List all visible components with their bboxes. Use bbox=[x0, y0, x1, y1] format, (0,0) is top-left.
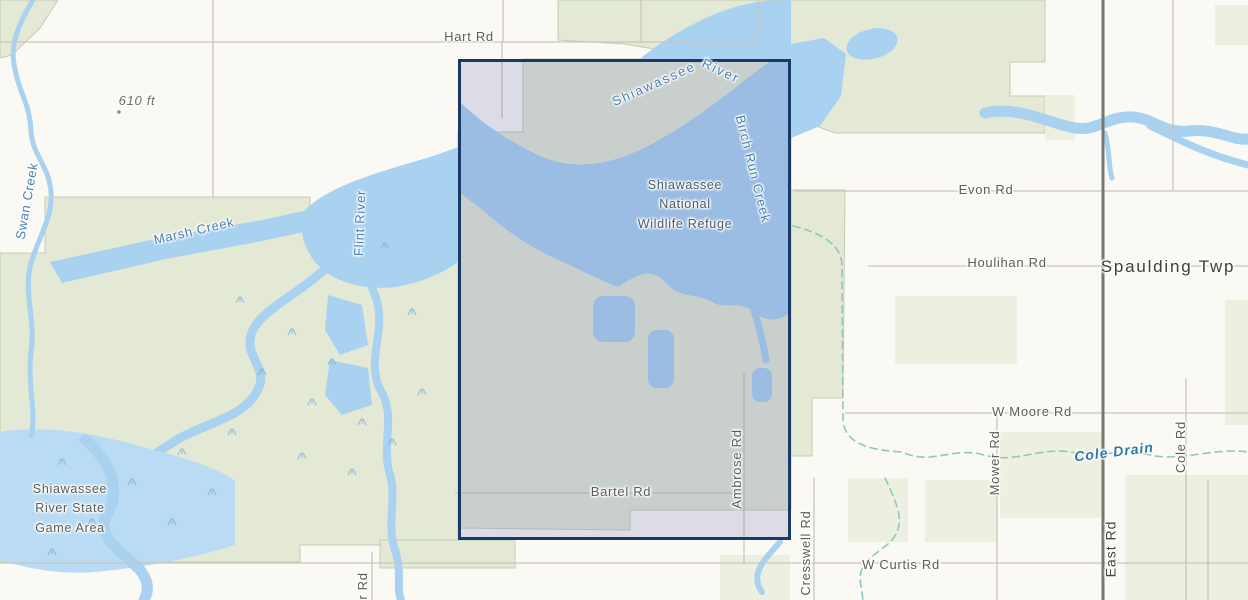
elevation-point-marker bbox=[117, 110, 120, 113]
map-viewport[interactable]: Hart Rd 610 ft Swan Creek Marsh Creek Fl… bbox=[0, 0, 1248, 600]
selection-extent-rectangle[interactable] bbox=[458, 59, 791, 540]
